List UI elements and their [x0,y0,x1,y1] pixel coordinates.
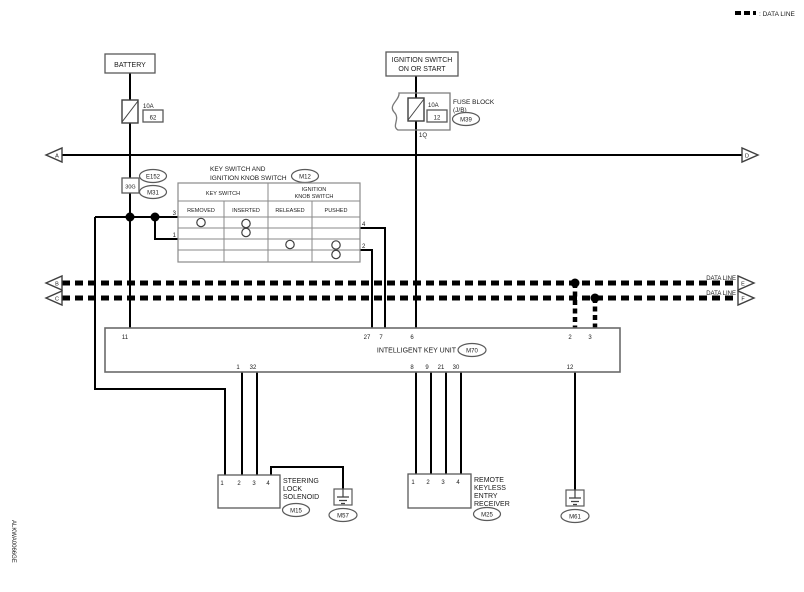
table-col-removed: REMOVED [187,208,215,214]
junction-dot-data-top [571,279,580,288]
footer-diagram-code: ALKWA0066GE [10,520,16,563]
junction-dot-data-bottom [591,294,600,303]
key-unit-title: INTELLIGENT KEY UNIT [377,348,457,355]
junction-dot-branch [151,213,160,222]
arrow-letter-A: A [55,154,59,160]
connector-label-M61: M61 [569,515,581,521]
diagram-canvas: : DATA LINE A D B C E F DATA LINE DATA L… [0,0,804,592]
solenoid-box [218,475,280,508]
connector-label-M57: M57 [337,514,349,520]
ignition-fuse-number: 12 [434,116,441,122]
ignition-label-line1: IGNITION SWITCH [392,57,453,64]
contact-released [286,240,294,248]
receiver-label-line2: KEYLESS [474,485,506,492]
connector-label-M12: M12 [299,175,311,181]
solenoid-label-line2: LOCK [283,486,302,493]
arrow-letter-E: E [741,282,745,288]
contact-inserted-bottom [242,228,250,236]
arrow-letter-C: C [55,297,59,303]
wiring-diagram: : DATA LINE A D B C E F DATA LINE DATA L… [0,0,804,592]
table-col-inserted: INSERTED [232,208,260,214]
connector-label-M39: M39 [460,118,472,124]
fuse-block-pin-1Q: 1Q [419,133,427,139]
solenoid-label-line3: SOLENOID [283,494,319,501]
connector-label-M25: M25 [481,513,493,519]
table-group-knob-line2: KNOB SWITCH [295,194,334,200]
pin-label-30G: 30G [125,185,135,191]
fuse-block-label-line1: FUSE BLOCK [453,99,495,106]
key-unit-pin-30: 30 [453,365,460,371]
arrow-left-C [46,291,62,305]
contact-inserted-top [242,219,250,227]
ignition-fuse-rating: 10A [428,103,439,109]
wire-keyswitch-pin2-to-unit27 [360,250,372,328]
solenoid-label-line1: STEERING [283,478,319,485]
key-switch-title-line2: IGNITION KNOB SWITCH [210,175,287,182]
receiver-label-line1: REMOTE [474,477,504,484]
legend-label: : DATA LINE [759,11,796,18]
battery-fuse-number: 62 [150,116,157,122]
ignition-label-line2: ON OR START [398,66,446,73]
key-unit-pin-12: 12 [567,365,574,371]
receiver-box [408,474,471,508]
connector-label-E152: E152 [146,175,161,181]
arrow-letter-B: B [55,282,59,288]
table-group-knob-line1: IGNITION [302,187,326,193]
table-group-key-switch: KEY SWITCH [206,191,240,197]
receiver-label-line4: RECEIVER [474,501,510,508]
contact-removed [197,218,205,226]
key-unit-pin-11: 11 [122,335,129,341]
key-unit-pin-32: 32 [250,365,257,371]
table-col-pushed: PUSHED [325,208,348,214]
connector-label-M15: M15 [290,509,302,515]
data-line-label-top: DATA LINE [706,276,736,282]
contact-pushed-bottom [332,250,340,258]
junction-dot-battery [126,213,135,222]
intelligent-key-unit-box [105,328,620,372]
battery-fuse-rating: 10A [143,104,154,110]
data-line-label-bottom: DATA LINE [706,291,736,297]
arrow-left-A [46,148,62,162]
contact-pushed-top [332,241,340,249]
connector-label-M70: M70 [466,349,478,355]
receiver-label-line3: ENTRY [474,493,498,500]
arrow-left-B [46,276,62,290]
connector-label-M31: M31 [147,191,159,197]
arrow-letter-D: D [745,154,749,160]
battery-label: BATTERY [114,62,146,69]
key-unit-pin-27: 27 [364,335,371,341]
key-unit-pin-21: 21 [438,365,445,371]
key-switch-title-line1: KEY SWITCH AND [210,166,266,173]
table-col-released: RELEASED [275,208,304,214]
